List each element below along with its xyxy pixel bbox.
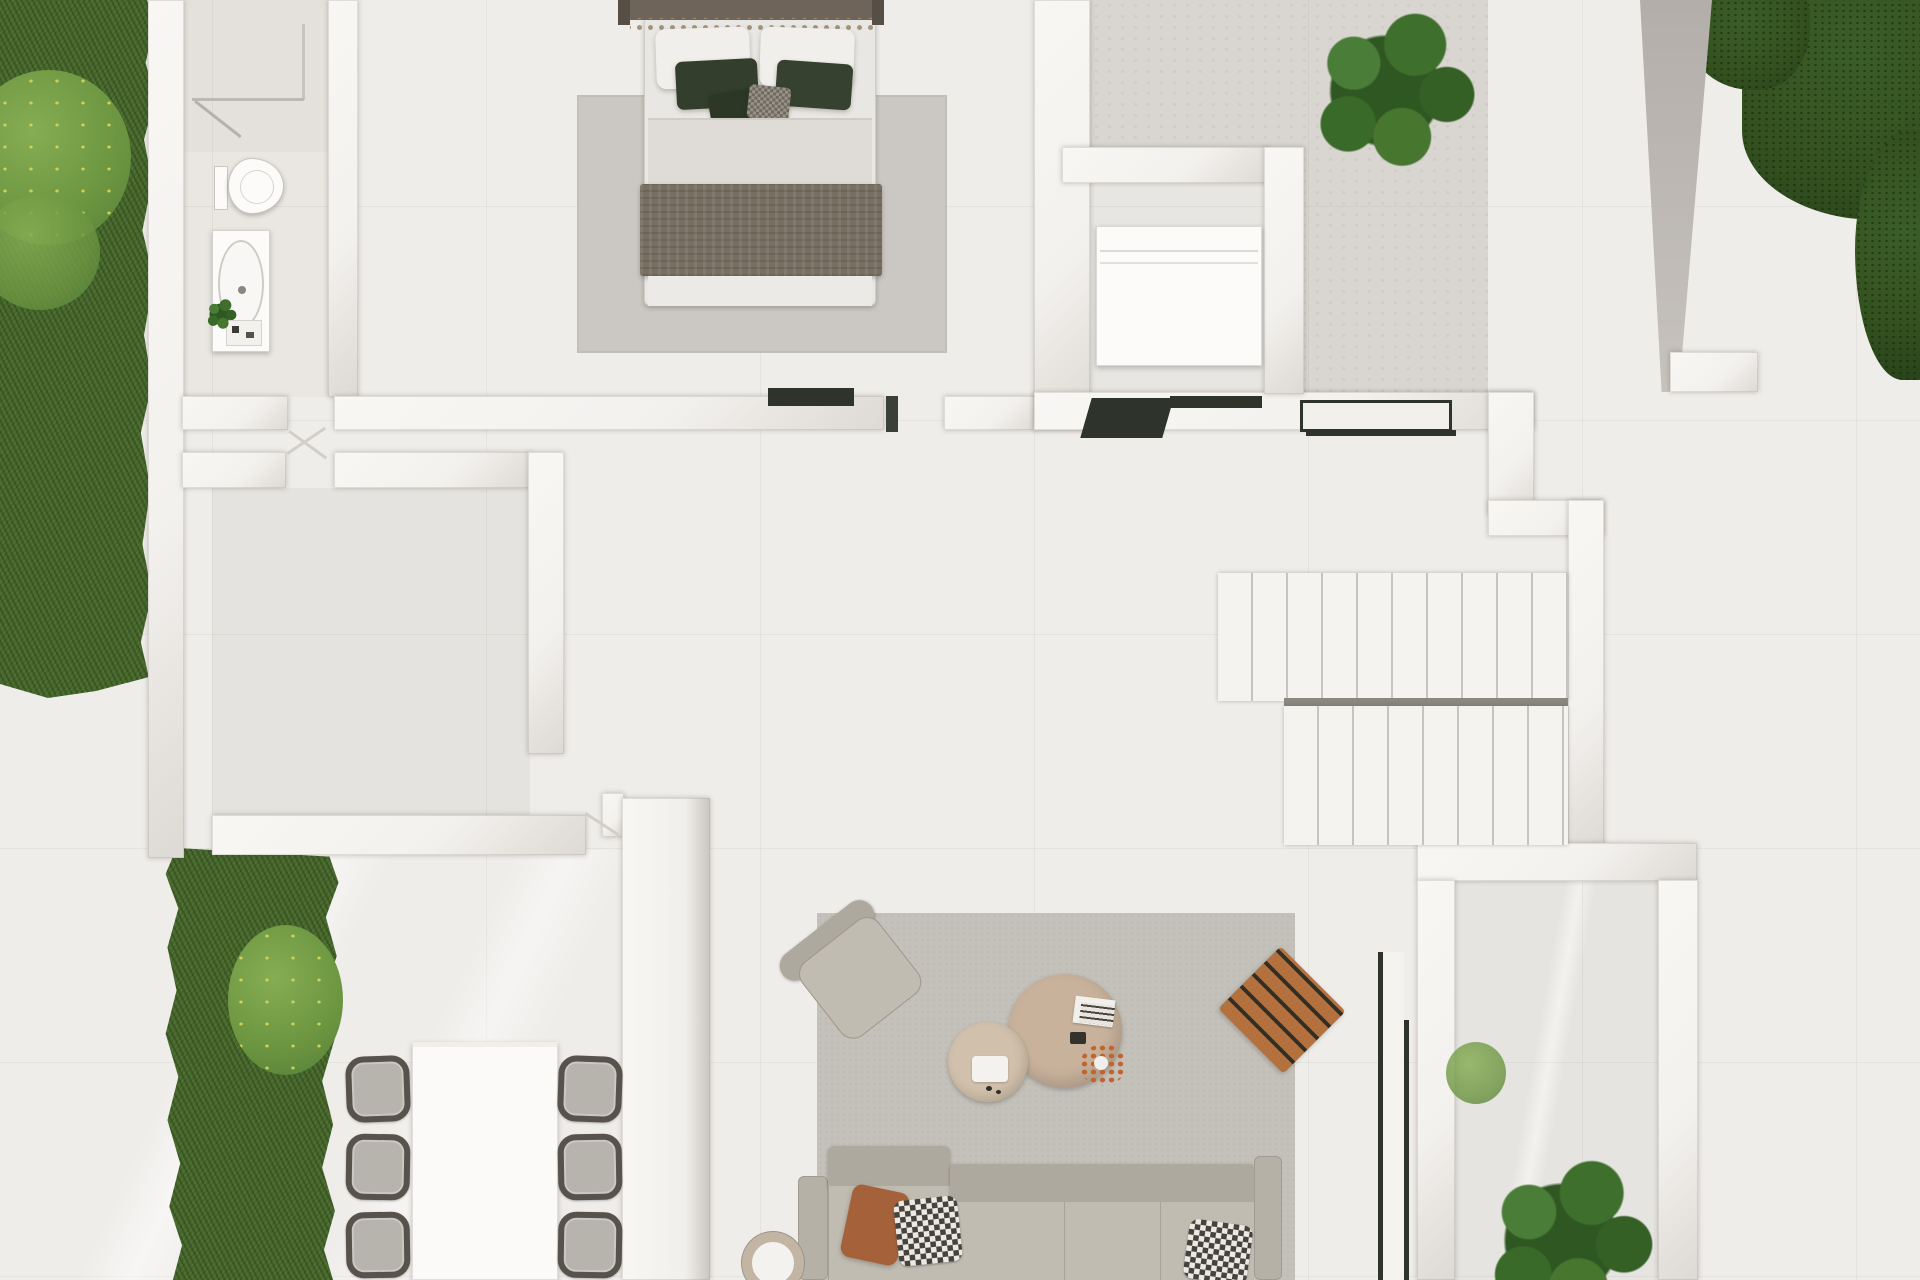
sofa-back-left: [828, 1146, 950, 1186]
dining-table: [412, 1042, 558, 1280]
stairs-upper-flight: [1218, 573, 1568, 701]
wall-terrace-top: [212, 815, 586, 855]
toilet-tank: [214, 166, 228, 210]
wall-stair-right: [1568, 500, 1604, 845]
wall-stub-right: [1670, 352, 1758, 392]
sofa-pillow-check-2: [1182, 1218, 1254, 1280]
small-table-dot-2: [996, 1090, 1001, 1094]
dining-chair: [557, 1211, 622, 1278]
wall-courtyard-lower-right: [1658, 880, 1698, 1280]
floor-plan: [0, 0, 1920, 1280]
sliding-door-dark-panel: [1080, 398, 1173, 438]
glass-door-frame-1: [1378, 952, 1383, 1280]
wall-left-outer: [148, 0, 184, 858]
tuft-lower-courtyard: [1446, 1042, 1506, 1104]
vanity-faucet: [238, 286, 246, 294]
sliding-door-track: [1170, 396, 1262, 408]
dining-chair: [345, 1133, 410, 1200]
shower-glass-panel: [192, 98, 304, 101]
bed-foot-sheet: [648, 276, 872, 306]
dining-chair: [345, 1211, 410, 1278]
bedroom-window-bar: [768, 388, 854, 406]
headboard-post-left: [618, 0, 630, 25]
wall-terrace-right: [622, 798, 710, 1280]
toilet-seat-line: [240, 170, 274, 204]
wall-nook-top: [1062, 147, 1268, 183]
table-book-2: [1079, 1002, 1115, 1026]
bed-pillow-accent: [746, 84, 791, 122]
wall-room-right: [528, 452, 564, 754]
fig-plant-upper: [1298, 8, 1484, 192]
wall-room-top-a: [182, 452, 286, 488]
wall-courtyard-right: [1488, 392, 1534, 514]
shower-glass-side: [302, 24, 305, 100]
wall-courtyard-lower-top: [1417, 843, 1697, 881]
bed-headboard: [618, 0, 884, 20]
stairs-divider: [1284, 698, 1568, 706]
dining-chair: [557, 1055, 623, 1123]
shrub-bottom: [228, 925, 343, 1075]
small-table-dot-1: [986, 1086, 992, 1091]
glass-door-pane: [1383, 952, 1404, 1280]
palm-plant-upper-large: [1452, 180, 1637, 370]
sliding-door-rail: [1306, 430, 1456, 436]
bathroom-plant: [204, 298, 238, 334]
wall-closet-left: [1034, 0, 1090, 430]
tray-item-2: [246, 332, 254, 338]
dining-chair: [345, 1055, 411, 1123]
wall-bath-bedroom: [328, 0, 358, 397]
wall-room-top-b: [334, 452, 530, 488]
glass-door-frame-2: [1404, 1020, 1409, 1280]
sofa-seam-2: [1160, 1202, 1161, 1280]
sofa-pillow-check-1: [893, 1195, 964, 1267]
small-table-tray: [972, 1056, 1008, 1082]
cabinet-shelf-line-2: [1100, 262, 1258, 264]
sofa-back-right: [950, 1164, 1254, 1202]
bed-foot-blanket: [640, 184, 882, 276]
sofa-seam-1: [1064, 1202, 1065, 1280]
door-frame-stub: [886, 396, 898, 432]
flower-vase: [1094, 1056, 1108, 1070]
wall-hall-a: [182, 396, 288, 430]
cabinet-shelf-line-1: [1100, 250, 1258, 252]
dining-chair: [557, 1133, 622, 1200]
sliding-door-glass-panel: [1300, 400, 1452, 432]
closet-cabinet: [1096, 226, 1262, 366]
table-deco-dark: [1070, 1032, 1086, 1044]
wall-nook-right: [1264, 147, 1304, 394]
sofa-armrest-right: [1254, 1156, 1282, 1280]
wall-hall-c: [944, 396, 1036, 430]
lawn-bottom-left: [162, 848, 344, 1280]
stairs-lower-flight: [1284, 706, 1568, 845]
